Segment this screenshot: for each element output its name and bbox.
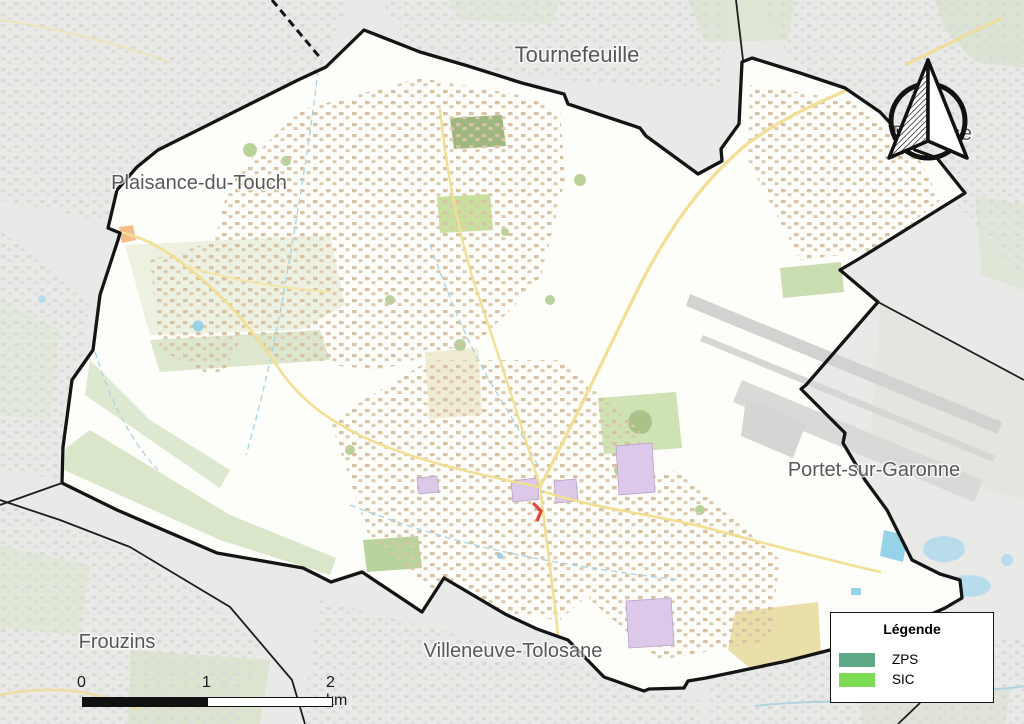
label-portet-sur-garonne: Portet-sur-Garonne — [788, 459, 960, 481]
label-villeneuve-tolosane: Villeneuve-Tolosane — [424, 640, 603, 662]
scale-tick-0: 0 — [77, 674, 86, 692]
legend-item-zps: ZPS — [839, 652, 918, 667]
sic-swatch — [839, 673, 875, 687]
zps-swatch — [839, 653, 875, 667]
legend: Légende ZPS SIC — [830, 612, 994, 703]
legend-item-zps-label: ZPS — [892, 652, 918, 667]
label-frouzins: Frouzins — [79, 631, 156, 653]
label-tournefeuille: Tournefeuille — [515, 42, 640, 67]
map-canvas: Tournefeuille Plaisance-du-Touch Toulous… — [0, 0, 1024, 724]
legend-item-sic: SIC — [839, 672, 915, 687]
scale-bar-rule — [82, 697, 333, 707]
legend-item-sic-label: SIC — [892, 672, 915, 687]
legend-title: Légende — [831, 621, 993, 637]
label-plaisance-du-touch: Plaisance-du-Touch — [111, 172, 287, 194]
scale-tick-1: 1 — [202, 674, 211, 692]
scale-bar-filled-half — [83, 698, 208, 706]
